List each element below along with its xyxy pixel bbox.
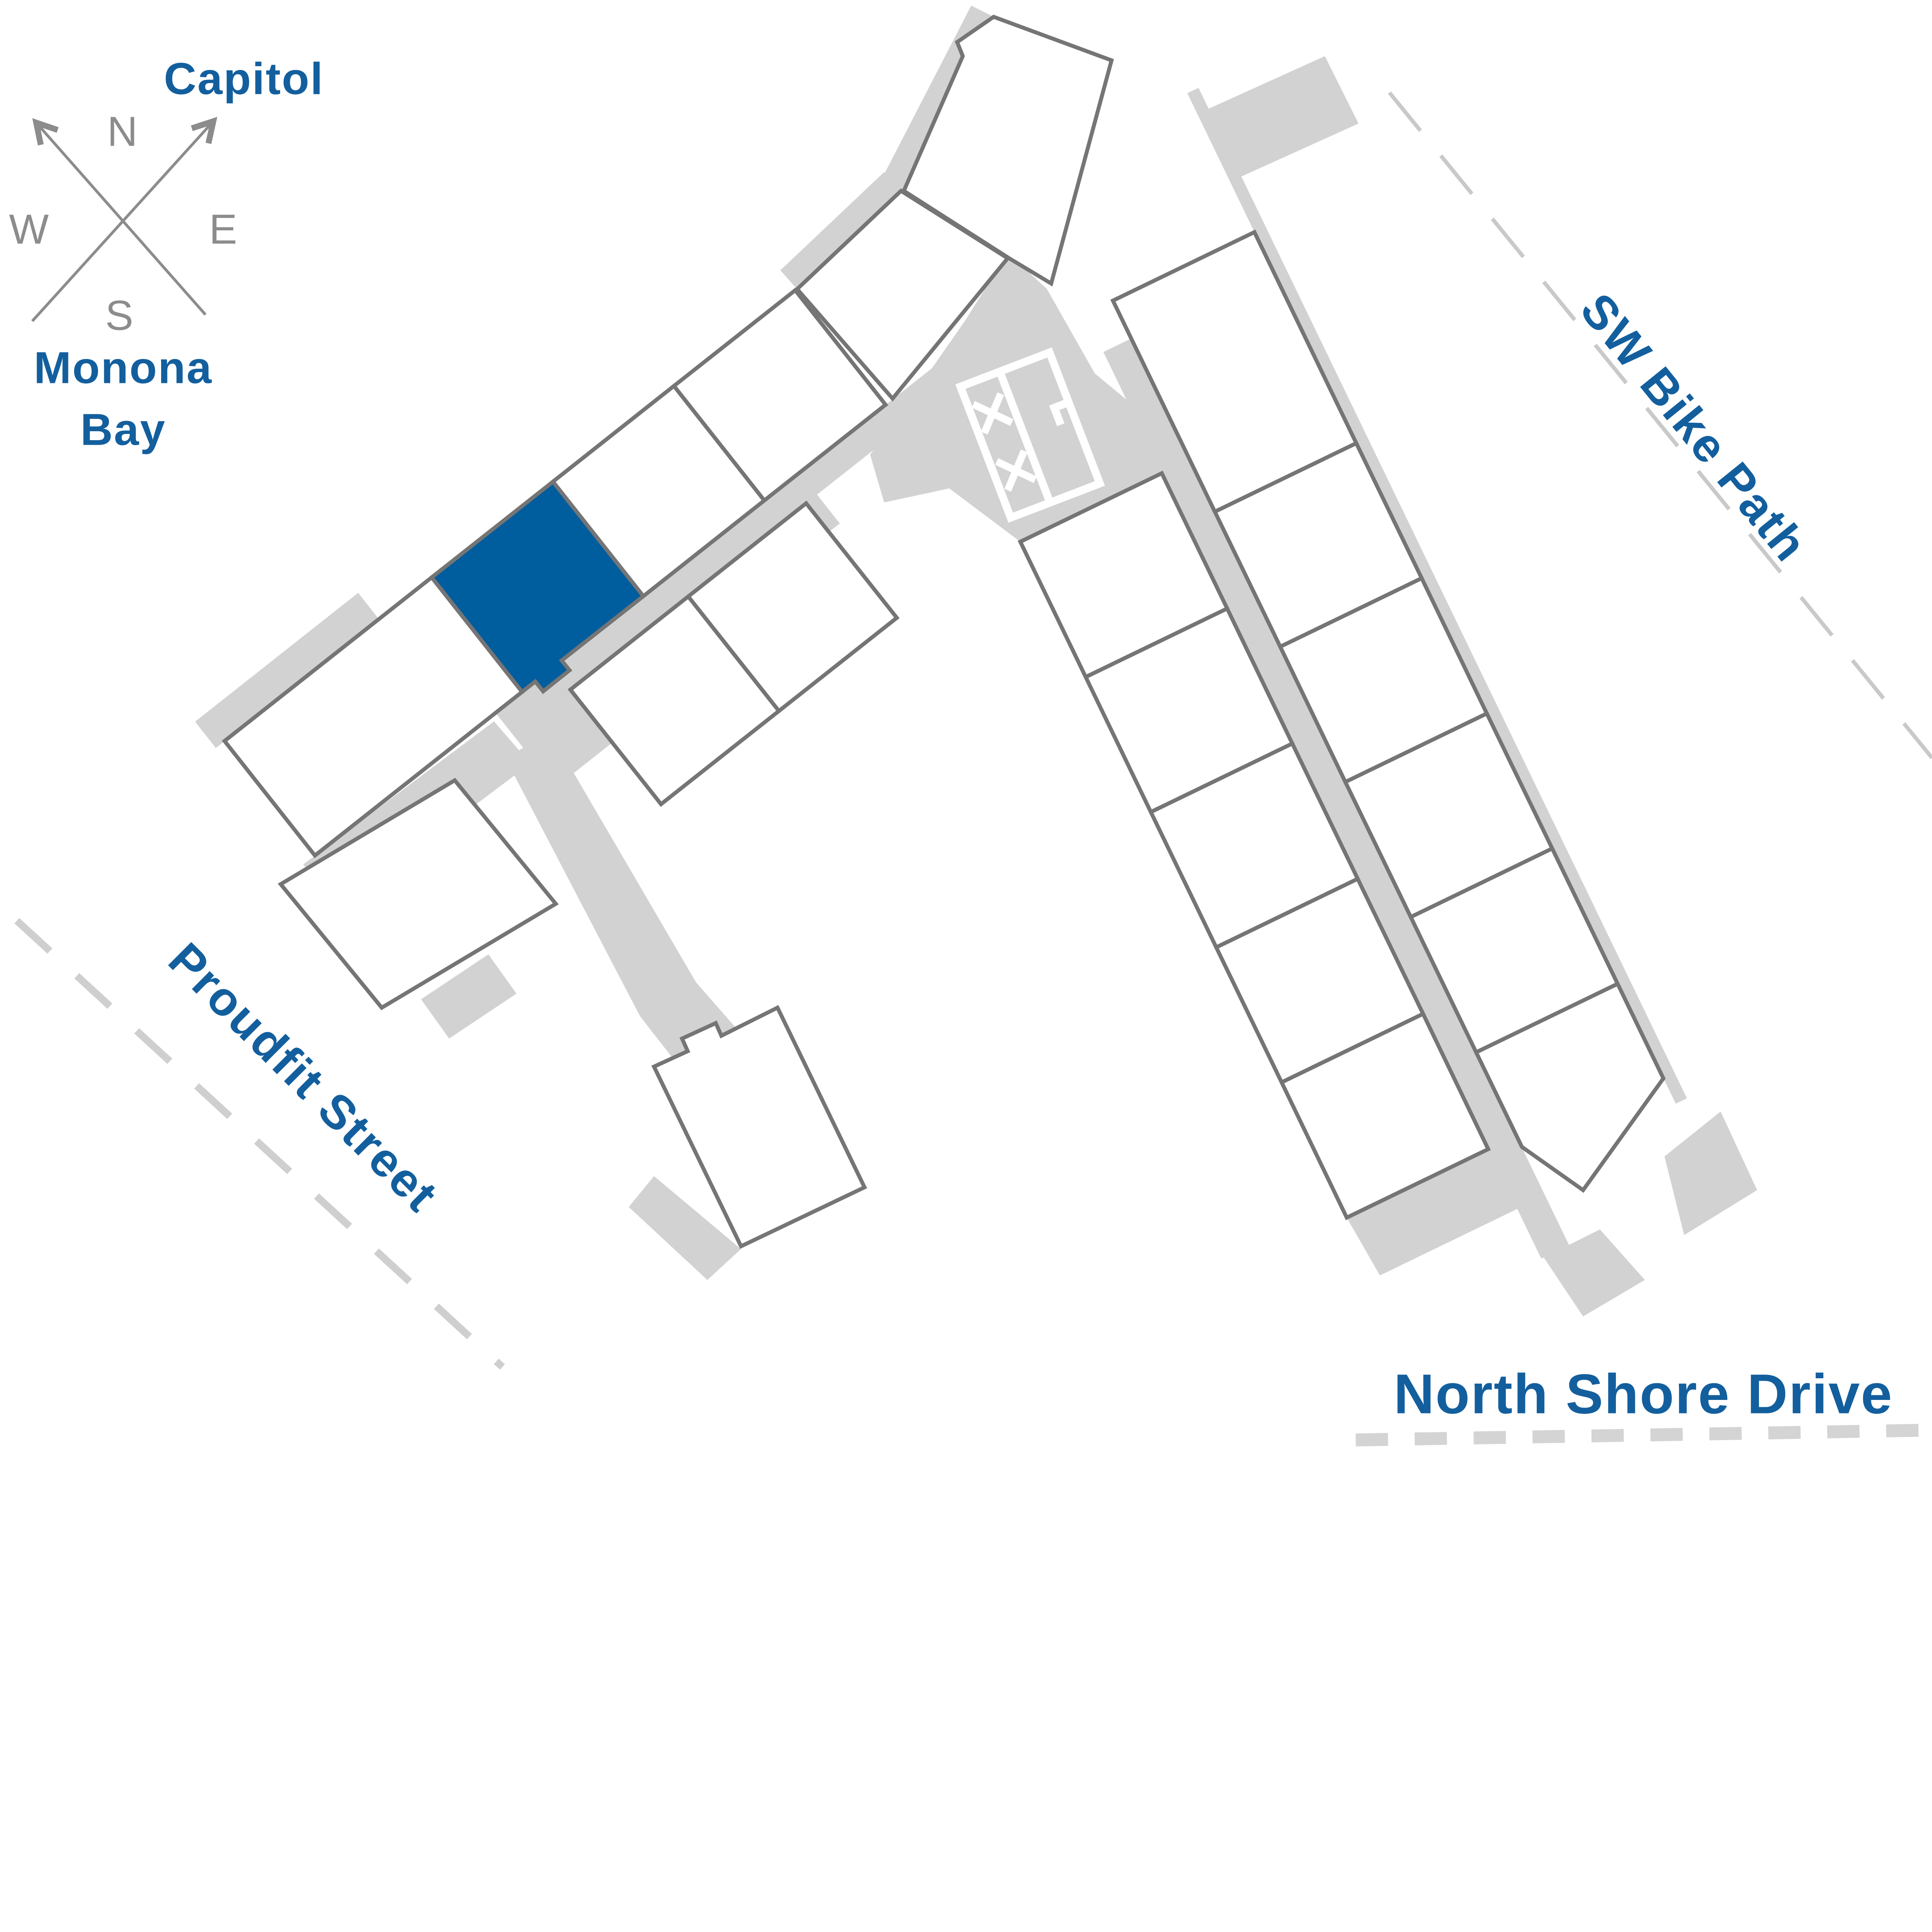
compass-north-label: N — [107, 108, 138, 155]
compass-south-label: S — [105, 292, 133, 339]
proudfit-street-line — [17, 921, 503, 1367]
unit-shapes — [224, 17, 1663, 1247]
site-map-page: N E S W Capitol Monona Bay SW Bike Path … — [0, 0, 1932, 1457]
north-shore-drive-label: North Shore Drive — [1394, 1362, 1893, 1425]
balcony — [1665, 1112, 1757, 1235]
capitol-label: Capitol — [164, 53, 324, 104]
floorplan-canvas: N E S W Capitol Monona Bay SW Bike Path … — [0, 0, 1932, 1457]
north-shore-drive-line — [1356, 1430, 1932, 1440]
monona-bay-label-line2: Bay — [80, 404, 166, 454]
sw-bike-path-label: SW Bike Path — [1570, 284, 1818, 572]
compass-west-label: W — [9, 206, 49, 253]
compass-icon: N E S W — [9, 108, 237, 339]
monona-bay-label-line1: Monona — [34, 343, 213, 393]
compass-east-label: E — [209, 206, 237, 253]
